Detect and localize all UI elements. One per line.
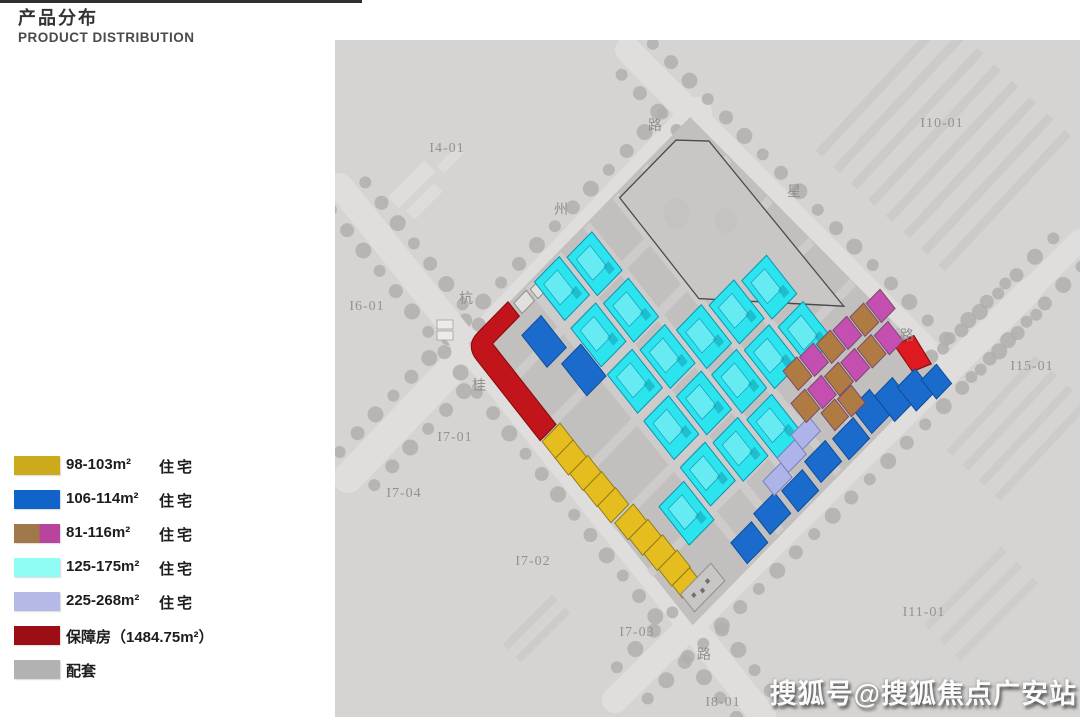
legend-range-label: 98-103m² xyxy=(66,456,131,473)
road-sign-box xyxy=(437,320,453,329)
tree-icon xyxy=(1020,316,1032,328)
tree-icon xyxy=(1055,277,1071,293)
tree-icon xyxy=(374,265,386,277)
tree-icon xyxy=(583,528,597,542)
legend-category-label: 住宅 xyxy=(159,456,195,477)
watermark: 搜狐号@搜狐焦点广安站 xyxy=(770,672,1077,711)
parcel-label: I7-02 xyxy=(515,554,550,569)
parcel-label: I7-01 xyxy=(437,430,472,445)
tree-icon xyxy=(736,128,752,144)
tree-icon xyxy=(936,398,952,414)
tree-icon xyxy=(681,73,697,89)
tree-icon xyxy=(714,617,730,633)
tree-icon xyxy=(334,446,346,458)
parcel-label: I11-01 xyxy=(903,605,946,620)
tree-icon xyxy=(975,364,987,376)
title-en: PRODUCT DISTRIBUTION xyxy=(18,30,195,45)
tree-icon xyxy=(422,423,434,435)
tree-icon xyxy=(404,303,420,319)
road-name-label: 杭 xyxy=(459,290,473,306)
tree-icon xyxy=(867,259,879,271)
tree-icon xyxy=(620,144,634,158)
tree-icon xyxy=(456,383,472,399)
tree-icon xyxy=(702,93,714,105)
tree-icon xyxy=(658,672,674,688)
tree-icon xyxy=(730,642,746,658)
tree-icon xyxy=(599,547,615,563)
title-zh: 产品分布 xyxy=(18,8,195,29)
tree-icon xyxy=(616,69,628,81)
tree-icon xyxy=(402,440,418,456)
tree-icon xyxy=(900,436,914,450)
tree-icon xyxy=(769,563,785,579)
tree-icon xyxy=(719,110,733,124)
tree-icon xyxy=(884,276,898,290)
tree-icon xyxy=(753,583,765,595)
tree-icon xyxy=(678,655,692,669)
parcel-label: I15-01 xyxy=(1010,359,1053,374)
tree-icon xyxy=(529,237,545,253)
tree-icon xyxy=(367,406,383,422)
top-rule xyxy=(0,0,362,3)
tree-icon xyxy=(808,528,820,540)
tree-icon xyxy=(1000,332,1016,348)
legend-swatch-225-268 xyxy=(14,592,60,611)
legend-swatch-106-114 xyxy=(14,490,60,509)
parcel-label: I4-01 xyxy=(429,141,464,156)
tree-icon xyxy=(954,323,968,337)
tree-icon xyxy=(550,486,566,502)
tree-icon xyxy=(627,641,643,657)
tree-icon xyxy=(453,364,469,380)
legend-swatch-peitao xyxy=(14,660,60,679)
tree-icon xyxy=(611,661,623,673)
tree-icon xyxy=(696,669,712,685)
tree-icon xyxy=(965,371,977,383)
tree-icon xyxy=(789,545,803,559)
tree-icon xyxy=(340,223,354,237)
tree-icon xyxy=(351,426,365,440)
tree-icon xyxy=(972,304,988,320)
page: I4-01I10-01I6-01I15-01I7-01I7-04I7-02I7-… xyxy=(0,0,1080,717)
parcel-label: I8-01 xyxy=(705,695,740,710)
tree-icon xyxy=(901,294,917,310)
tree-icon xyxy=(880,453,896,469)
road-name-label: 路 xyxy=(900,327,914,343)
tree-icon xyxy=(568,509,580,521)
parcel-label: I7-03 xyxy=(619,625,654,640)
tree-icon xyxy=(422,326,434,338)
tree-icon xyxy=(520,448,532,460)
road-name-label: 路 xyxy=(697,646,711,662)
legend-swatch-98-103 xyxy=(14,456,60,475)
tree-icon xyxy=(355,243,371,259)
tree-icon xyxy=(535,467,549,481)
tree-icon xyxy=(774,166,788,180)
road-name-label: 桂 xyxy=(472,377,486,393)
tree-icon xyxy=(825,508,841,524)
road-name-label: 星 xyxy=(787,183,801,199)
tree-icon xyxy=(408,237,420,249)
legend-range-label: 配套 xyxy=(66,660,96,681)
legend-range-label: 81-116m² xyxy=(66,524,130,541)
legend-range-label: 125-175m² xyxy=(66,558,139,575)
road-name-label: 州 xyxy=(554,201,568,217)
tree-icon xyxy=(390,215,406,231)
tree-icon xyxy=(387,390,399,402)
tree-icon xyxy=(603,164,615,176)
tree-icon xyxy=(423,257,437,271)
tree-icon xyxy=(846,239,862,255)
tree-icon xyxy=(389,284,403,298)
legend-range-label: 225-268m² xyxy=(66,592,139,609)
tree-icon xyxy=(512,257,526,271)
legend-range-label: 保障房（1484.75m²） xyxy=(66,626,214,647)
tree-icon xyxy=(812,204,824,216)
tree-icon xyxy=(944,332,956,344)
tree-icon xyxy=(955,381,969,395)
tree-icon xyxy=(922,314,934,326)
legend-swatch-baozhangfang xyxy=(14,626,60,645)
tree-icon xyxy=(983,352,997,366)
tree-icon xyxy=(437,345,451,359)
tree-icon xyxy=(1010,268,1024,282)
tree-icon xyxy=(404,370,418,384)
tree-icon xyxy=(992,288,1004,300)
parcel-label: I6-01 xyxy=(349,299,384,314)
parcel-label: I10-01 xyxy=(920,116,963,131)
tree-icon xyxy=(647,38,659,50)
legend-category-label: 住宅 xyxy=(159,592,195,613)
tree-icon xyxy=(617,570,629,582)
tree-icon xyxy=(1047,232,1059,244)
tree-icon xyxy=(829,221,843,235)
road-name-label: 路 xyxy=(648,117,662,133)
road-sign-box xyxy=(437,331,453,340)
legend-category-label: 住宅 xyxy=(159,524,195,545)
tree-icon xyxy=(475,293,491,309)
tree-icon xyxy=(438,276,454,292)
tree-icon xyxy=(937,343,949,355)
tree-icon xyxy=(501,425,517,441)
tree-icon xyxy=(664,55,678,69)
tree-icon xyxy=(749,664,761,676)
tree-icon xyxy=(642,693,654,705)
tree-icon xyxy=(632,589,646,603)
tree-icon xyxy=(583,181,599,197)
parcel-label: I7-04 xyxy=(386,486,421,501)
legend-category-label: 住宅 xyxy=(159,558,195,579)
tree-icon xyxy=(999,277,1011,289)
tree-icon xyxy=(757,148,769,160)
tree-icon xyxy=(549,220,561,232)
legend-swatch-81-116 xyxy=(14,524,60,543)
tree-icon xyxy=(1030,309,1042,321)
tree-icon xyxy=(844,491,858,505)
tree-icon xyxy=(368,479,380,491)
tree-icon xyxy=(864,473,876,485)
tree-icon xyxy=(385,459,399,473)
legend-swatch-125-175 xyxy=(14,558,60,577)
tree-icon xyxy=(486,406,500,420)
tree-icon xyxy=(919,418,931,430)
tree-icon xyxy=(633,86,647,100)
legend-category-label: 住宅 xyxy=(159,490,195,511)
tree-icon xyxy=(495,277,507,289)
tree-icon xyxy=(439,403,453,417)
tree-icon xyxy=(647,608,663,624)
page-title: 产品分布 PRODUCT DISTRIBUTION xyxy=(18,8,195,45)
legend-range-label: 106-114m² xyxy=(66,490,139,507)
tree-icon xyxy=(421,350,437,366)
tree-icon xyxy=(1038,296,1052,310)
tree-icon xyxy=(359,176,371,188)
tree-icon xyxy=(325,204,337,216)
tree-icon xyxy=(666,606,678,618)
tree-icon xyxy=(375,196,389,210)
tree-icon xyxy=(733,600,747,614)
tree-icon xyxy=(1027,249,1043,265)
